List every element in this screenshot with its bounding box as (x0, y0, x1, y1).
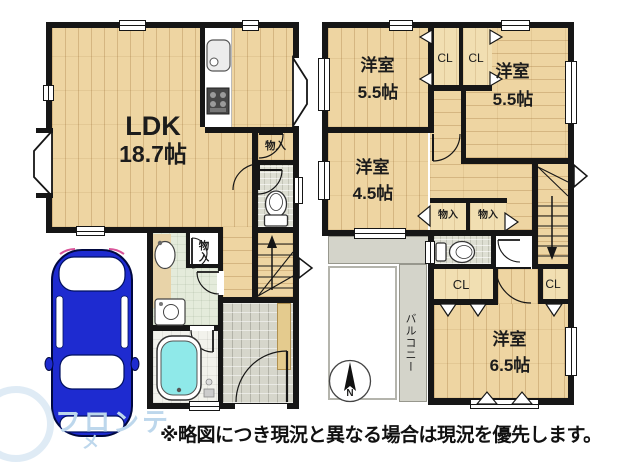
bay-window-stairs-2f (574, 165, 587, 187)
door-arc-ldk (233, 164, 259, 190)
storage-hall-label: 物入 (198, 237, 209, 265)
room-w-label: 洋室 (335, 159, 410, 176)
toilet-1f-icon (265, 191, 288, 226)
watermark-text: フロンテ (55, 402, 171, 439)
bay-window-left-1f (34, 128, 53, 198)
balcony-label: バルコニー (404, 300, 415, 385)
storage-ldk-label: 物入 (258, 141, 293, 152)
door-arc-room-s (496, 268, 531, 303)
washer-icon (155, 299, 185, 325)
shower-drain-icon (204, 379, 214, 397)
closet-ne-label: CL (462, 52, 490, 64)
compass-north-label: N (343, 389, 357, 399)
stairs-1f-up-arrow (267, 235, 277, 290)
door-arc-toilet-2f (498, 240, 520, 262)
closet-nw-label: CL (431, 52, 459, 64)
door-arc-room-w (433, 134, 460, 161)
storage-a-label: 物入 (430, 211, 466, 221)
door-arc-entrance (236, 351, 287, 402)
room-ne-label: 洋室 (475, 63, 550, 80)
kitchen-sink-icon (207, 40, 230, 71)
bay-window-stairs-1f (299, 258, 312, 278)
stove-icon (207, 88, 229, 114)
room-nw-label: 洋室 (340, 57, 415, 74)
bay-window-right-1f (293, 58, 307, 126)
ldk-label: LDK (118, 113, 188, 140)
disclaimer-caption: ※略図につき現況と異なる場合は現況を優先します。 (160, 420, 602, 447)
door-arc-toilet-1f (258, 170, 282, 194)
watermark-text-2: メ (82, 428, 99, 453)
room-w-size: 4.5帖 (333, 185, 413, 202)
door-arc-washroom (197, 272, 219, 294)
closet-se-label: CL (539, 278, 567, 290)
floorplan-page: LDK 18.7帖 物入 物入 洋室 5.5帖 洋室 5.5帖 洋室 4.5帖 … (0, 0, 620, 464)
bathtub-icon (157, 336, 201, 400)
storage-b-label: 物入 (469, 211, 507, 221)
room-ne-size: 5.5帖 (473, 91, 553, 108)
washbasin-icon (155, 241, 175, 269)
closet-s-label: CL (446, 278, 476, 291)
room-s-size: 6.5帖 (470, 357, 550, 374)
room-nw-size: 5.5帖 (338, 84, 418, 101)
toilet-2f-icon (436, 242, 475, 263)
stairs-2f (538, 167, 568, 256)
stairs-1f (258, 244, 293, 296)
ldk-size: 18.7帖 (110, 143, 196, 166)
room-s-label: 洋室 (472, 331, 547, 348)
